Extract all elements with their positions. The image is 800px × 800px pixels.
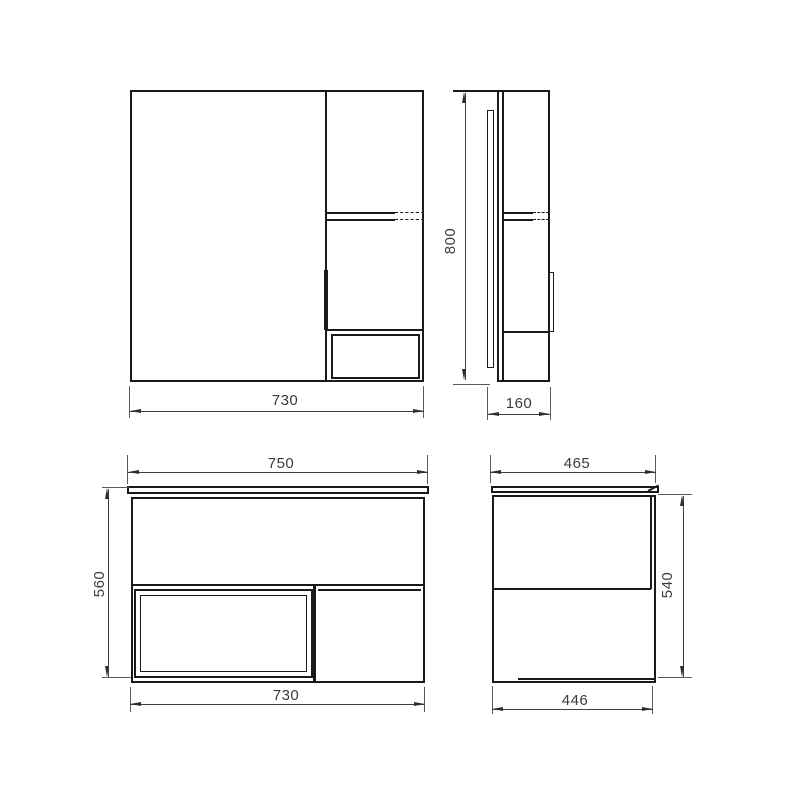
arrowhead-right — [417, 470, 428, 474]
shelf-hidden-line — [533, 219, 549, 220]
extension-line — [424, 687, 425, 712]
arrowhead-left — [488, 412, 499, 416]
extension-line — [102, 677, 131, 678]
dim-label-countertop-width: 750 — [259, 456, 303, 472]
arrowhead-down — [462, 369, 466, 380]
cabinet-body-outline — [497, 90, 550, 382]
door-handle — [324, 270, 328, 330]
door-divider-line — [313, 584, 316, 683]
shelf-line — [504, 219, 533, 221]
arrowhead-left — [130, 409, 141, 413]
arrowhead-right — [645, 470, 656, 474]
arrowhead-up — [462, 92, 466, 103]
arrowhead-up — [105, 488, 109, 499]
dim-label-mirror-height: 800 — [443, 219, 459, 263]
extension-line — [129, 386, 130, 418]
extension-line — [658, 494, 692, 495]
arrowhead-down — [680, 666, 684, 677]
extension-line — [550, 387, 551, 420]
dim-label-vanity-height: 560 — [92, 562, 108, 606]
shelf-hidden-line — [395, 219, 424, 220]
countertop-profile — [491, 486, 659, 493]
open-niche-outline — [331, 334, 420, 379]
countertop-outline — [127, 486, 429, 494]
arrowhead-left — [128, 470, 139, 474]
arrowhead-right — [539, 412, 550, 416]
shelf-line — [327, 219, 395, 221]
dimension-line — [130, 704, 425, 705]
mirror-door-divider-line — [325, 90, 327, 382]
dimension-line — [492, 709, 653, 710]
dim-label-vanity-side-height: 540 — [660, 563, 676, 607]
technical-drawing-canvas: 730 800 160 750 — [0, 0, 800, 800]
shelf-line — [504, 212, 533, 214]
dim-label-vanity-depth: 446 — [553, 693, 597, 709]
bottom-recess-line — [518, 678, 655, 680]
drawer-divider-line — [131, 584, 425, 586]
shelf-hidden-line — [395, 212, 424, 213]
shelf-hidden-line — [533, 212, 549, 213]
door-handle-profile — [549, 272, 554, 332]
shelf-line — [327, 212, 395, 214]
arrowhead-left — [130, 702, 141, 706]
dim-label-vanity-width: 730 — [264, 688, 308, 704]
arrowhead-right — [642, 707, 653, 711]
dimension-line — [465, 93, 466, 380]
drawer-front-line — [650, 495, 652, 589]
arrowhead-down — [105, 666, 109, 677]
arrowhead-up — [680, 495, 684, 506]
extension-line — [453, 384, 490, 385]
dimension-line — [128, 472, 428, 473]
open-shelf-top-line — [327, 329, 424, 331]
extension-line — [423, 386, 424, 418]
arrowhead-right — [413, 409, 424, 413]
extension-line — [655, 455, 656, 483]
arrowhead-left — [490, 470, 501, 474]
dimension-line — [683, 496, 684, 677]
mirror-door-profile — [487, 110, 494, 368]
arrowhead-left — [492, 707, 503, 711]
dimension-line — [490, 472, 656, 473]
drawer-niche-inner — [140, 595, 307, 672]
dim-label-mirror-depth: 160 — [497, 396, 541, 412]
dimension-line — [108, 489, 109, 677]
dim-label-mirror-width: 730 — [263, 393, 307, 409]
dim-label-countertop-depth: 465 — [555, 456, 599, 472]
door-top-line — [318, 589, 421, 591]
carcass-front-line — [502, 92, 504, 380]
extension-line — [658, 677, 692, 678]
arrowhead-right — [414, 702, 425, 706]
extension-line — [490, 455, 491, 483]
drawer-divider-line — [492, 588, 651, 590]
dimension-line — [130, 411, 424, 412]
extension-line — [130, 687, 131, 712]
open-shelf-line — [504, 331, 550, 333]
